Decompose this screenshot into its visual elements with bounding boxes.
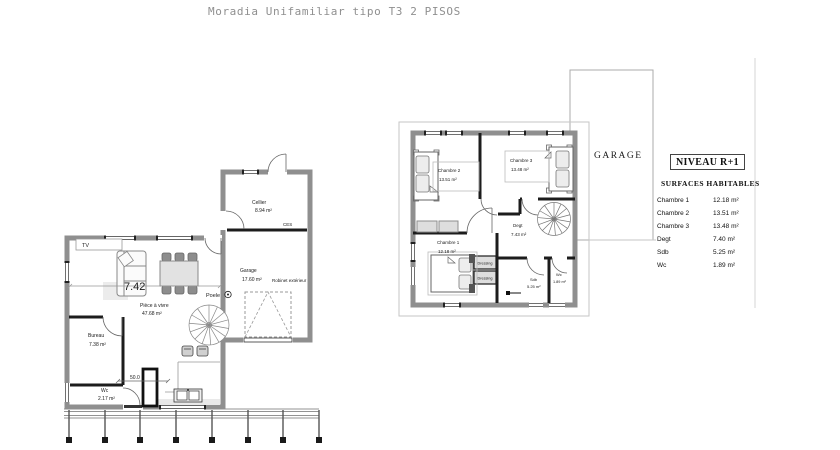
room-label-cellier: Cellier <box>252 200 267 206</box>
room-label-bureau: Bureau <box>88 333 104 339</box>
row-value: 5.25 m² <box>713 249 735 256</box>
room-label-garage: Garage <box>240 268 257 274</box>
room-area-chambre2: 13.51 m² <box>439 177 457 182</box>
bed-chambre-2 <box>414 150 440 201</box>
room-area-garage: 17.60 m² <box>242 277 262 283</box>
room-area-sdb: 5.25 m² <box>527 284 541 289</box>
row-value: 12.18 m² <box>713 197 739 204</box>
dimension-value-column: 50.0 <box>130 375 140 381</box>
row-value: 1.89 m² <box>713 262 735 269</box>
table-row: Chambre 2 13.51 m² <box>657 210 751 217</box>
dining-table <box>160 253 198 294</box>
room-area-degt: 7.43 m² <box>511 232 527 237</box>
table-row: Chambre 3 13.48 m² <box>657 223 751 230</box>
row-label: Chambre 1 <box>657 197 713 204</box>
robinet-label: Robinet extérieur <box>272 278 307 283</box>
ground-floor-plan: 7.42 <box>64 154 322 443</box>
deck-pergola <box>64 409 322 443</box>
row-label: Chambre 2 <box>657 210 713 217</box>
table-row: Wc 1.89 m² <box>657 262 751 269</box>
room-area-wc-upper: 1.89 m² <box>553 280 567 284</box>
bed-chambre-1 <box>428 252 477 295</box>
room-area-chambre1: 12.18 m² <box>438 249 456 254</box>
room-area-cellier: 8.94 m² <box>255 208 272 214</box>
spiral-stairs-ground <box>189 305 229 345</box>
closet <box>417 221 458 232</box>
room-label-chambre2: Chambre 2 <box>438 168 461 173</box>
dressing-label-1: Dressing <box>478 262 493 266</box>
surfaces-table: Chambre 1 12.18 m² Chambre 2 13.51 m² Ch… <box>657 197 775 269</box>
row-label: Degt <box>657 236 713 243</box>
level-title: NIVEAU R+1 <box>670 154 745 170</box>
dimension-value-living: 7.42 <box>124 281 145 293</box>
table-row: Sdb 5.25 m² <box>657 249 751 256</box>
room-label-sdb: Sdb <box>530 277 538 282</box>
room-label-chambre1: Chambre 1 <box>437 240 460 245</box>
room-label-chambre3: Chambre 3 <box>510 158 533 163</box>
row-label: Sdb <box>657 249 713 256</box>
ces-label: CES <box>283 222 292 227</box>
room-label-degt: Degt <box>513 223 523 228</box>
room-area-living: 47.68 m² <box>142 311 162 317</box>
row-value: 7.40 m² <box>713 236 735 243</box>
table-row: Chambre 1 12.18 m² <box>657 197 751 204</box>
surfaces-heading: SURFACES HABITABLES <box>661 179 775 188</box>
room-label-wc-ground: Wc <box>101 388 109 394</box>
row-value: 13.51 m² <box>713 210 739 217</box>
room-area-chambre3: 13.48 m² <box>511 167 529 172</box>
row-value: 13.48 m² <box>713 223 739 230</box>
row-label: Chambre 3 <box>657 223 713 230</box>
table-row: Degt 7.40 m² <box>657 236 751 243</box>
garage-label: GARAGE <box>594 151 643 161</box>
room-label-wc-upper: Wc <box>556 272 562 277</box>
dressing-label-2: Dressing <box>478 277 493 281</box>
tv-label: TV <box>82 243 89 249</box>
row-label: Wc <box>657 262 713 269</box>
room-area-bureau: 7.38 m² <box>89 342 106 348</box>
stove-label: Poele <box>206 293 220 299</box>
spiral-stairs-upper <box>538 203 571 236</box>
room-area-wc-ground: 2.17 m² <box>98 396 115 402</box>
sink-icon <box>174 389 202 402</box>
room-label-living: Pièce à vivre <box>140 303 169 309</box>
legend-panel: NIVEAU R+1 SURFACES HABITABLES Chambre 1… <box>655 152 775 275</box>
floorplan-sheet: Moradia Unifamiliar tipo T3 2 PISOS <box>0 0 840 450</box>
